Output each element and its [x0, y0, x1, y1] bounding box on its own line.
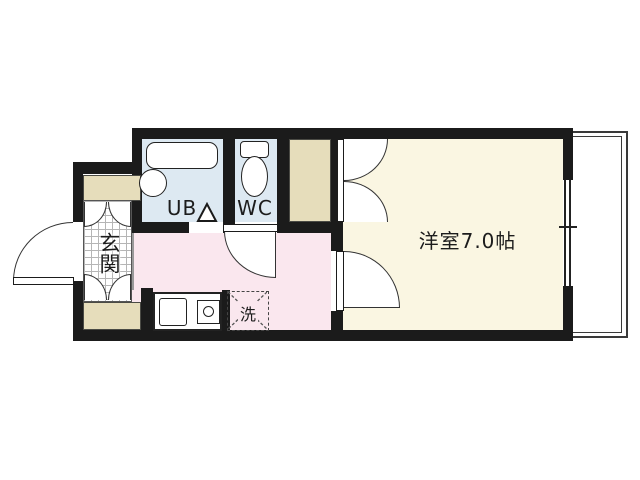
- room-door-leaf: [336, 251, 344, 311]
- wall: [73, 281, 83, 332]
- shoe-cabinet-top: [83, 175, 141, 201]
- closet-door-leaf: [337, 139, 344, 222]
- wall: [73, 162, 83, 222]
- western-room-label: 洋室7.0帖: [380, 225, 555, 254]
- washer-space: 洗: [227, 291, 269, 331]
- wall: [331, 311, 343, 341]
- doorway: [189, 222, 223, 233]
- stove-burner-icon: [203, 306, 214, 317]
- wall: [277, 128, 289, 233]
- bathtub-icon: [146, 142, 218, 169]
- entrance-door-arc: [13, 222, 73, 281]
- kitchen-sink-icon: [159, 298, 187, 326]
- wall: [132, 128, 573, 139]
- step-edge: [132, 233, 134, 290]
- toilet-label: WC: [233, 196, 277, 220]
- window-line: [564, 180, 566, 286]
- wall: [141, 288, 153, 341]
- window-tick: [559, 226, 577, 228]
- toilet-bowl-icon: [241, 156, 268, 197]
- window-line: [569, 180, 571, 286]
- washer-label: 洗: [238, 301, 258, 325]
- wall: [563, 128, 573, 180]
- wall: [277, 222, 338, 233]
- wc-door-leaf: [223, 224, 278, 232]
- wall: [132, 222, 189, 233]
- wall: [331, 222, 343, 251]
- wall: [563, 286, 573, 341]
- washbasin-icon: [139, 169, 167, 197]
- storage-closet: [289, 139, 331, 222]
- entrance-label: 玄関: [92, 226, 120, 280]
- entrance-door-leaf: [13, 277, 74, 285]
- shoe-cabinet-bottom: [83, 302, 141, 330]
- bath-door-triangle-icon: [196, 202, 218, 223]
- balcony-inner-line: [573, 136, 622, 333]
- floorplan: 玄関 UB WC 洗 洋室7.0帖: [0, 0, 640, 480]
